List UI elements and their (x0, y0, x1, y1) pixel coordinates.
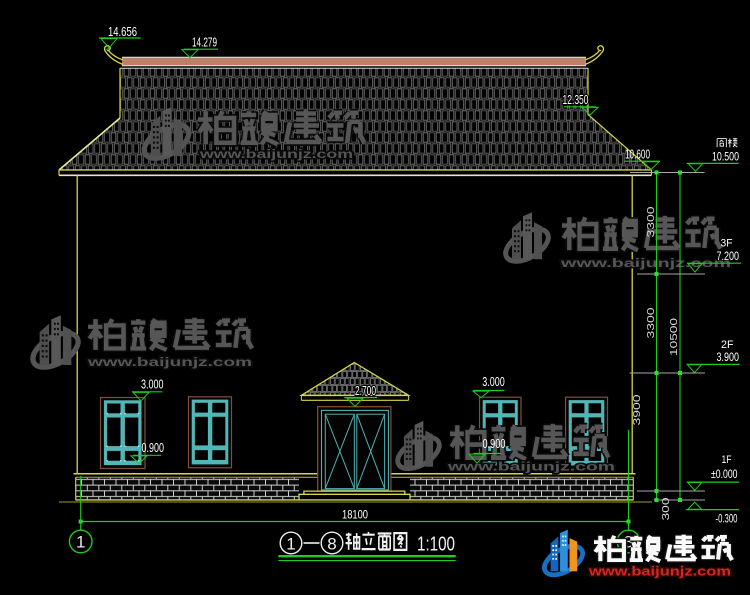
svg-text:3.000: 3.000 (482, 375, 505, 389)
svg-text:14.279: 14.279 (192, 36, 217, 50)
svg-text:-0.300: -0.300 (716, 511, 738, 525)
svg-text:3900: 3900 (632, 394, 643, 426)
svg-text:10500: 10500 (669, 317, 680, 356)
svg-text:1: 1 (286, 535, 295, 554)
svg-text:3F: 3F (721, 237, 733, 249)
svg-text:2.700: 2.700 (355, 384, 376, 398)
svg-text:8: 8 (327, 535, 336, 554)
svg-text:1: 1 (76, 533, 85, 552)
svg-text:3300: 3300 (646, 307, 657, 339)
svg-text:www.baijunjz.com: www.baijunjz.com (588, 564, 731, 579)
svg-text:10.500: 10.500 (712, 149, 739, 163)
svg-text:7.200: 7.200 (717, 249, 740, 263)
svg-text:3300: 3300 (646, 206, 657, 238)
svg-text:0.900: 0.900 (483, 437, 506, 451)
svg-text:12.350: 12.350 (563, 93, 589, 107)
svg-text:www.baijunjz.com: www.baijunjz.com (446, 460, 615, 474)
svg-text:±0.000: ±0.000 (711, 467, 738, 481)
svg-text:3.900: 3.900 (717, 350, 740, 364)
svg-text:www.baijunjz.com: www.baijunjz.com (199, 147, 353, 161)
svg-text:18100: 18100 (342, 507, 368, 521)
svg-text:3.000: 3.000 (141, 378, 164, 392)
svg-text:1F: 1F (722, 454, 732, 466)
svg-text:10.600: 10.600 (625, 147, 650, 161)
svg-text:0.900: 0.900 (142, 441, 165, 455)
svg-text:www.baijunjz.com: www.baijunjz.com (86, 355, 252, 369)
svg-text:14.656: 14.656 (108, 25, 137, 39)
svg-text:1:100: 1:100 (417, 533, 455, 556)
svg-text:300: 300 (661, 497, 672, 521)
